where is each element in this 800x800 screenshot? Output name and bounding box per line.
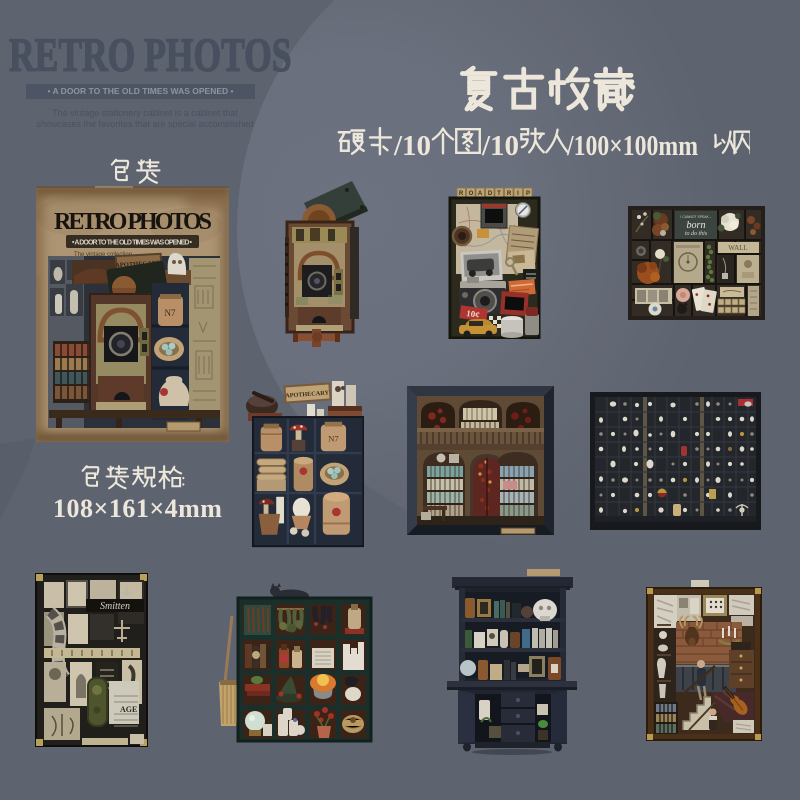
svg-text:RETRO PHOTOS: RETRO PHOTOS — [54, 209, 212, 235]
svg-text:T: T — [497, 191, 501, 197]
svg-text:RETRO PHOTOS: RETRO PHOTOS — [9, 29, 292, 82]
svg-text:AGE: AGE — [120, 705, 137, 714]
svg-text:• A DOOR TO THE OLD TIMES WAS: • A DOOR TO THE OLD TIMES WAS OPENED • — [72, 240, 193, 247]
svg-text:to do this: to do this — [685, 231, 708, 237]
svg-text:/100×100mm: /100×100mm — [566, 130, 698, 162]
svg-text:A: A — [478, 191, 483, 197]
svg-text::: : — [181, 470, 186, 490]
svg-text:R: R — [459, 191, 464, 197]
svg-text:O: O — [469, 191, 474, 197]
svg-text:I CANNOT SPEAK...: I CANNOT SPEAK... — [680, 215, 711, 219]
svg-text:N7: N7 — [328, 434, 339, 444]
svg-text:P: P — [526, 191, 530, 197]
svg-text:10¢: 10¢ — [466, 308, 481, 320]
svg-text:born: born — [687, 220, 706, 231]
svg-text:Smitten: Smitten — [100, 601, 130, 612]
svg-text:R: R — [507, 191, 512, 197]
svg-text:WALL: WALL — [728, 244, 747, 252]
svg-text:D: D — [488, 191, 493, 197]
svg-text:/10: /10 — [393, 130, 431, 162]
svg-text:/10: /10 — [481, 130, 519, 162]
svg-text:N7: N7 — [165, 308, 176, 318]
